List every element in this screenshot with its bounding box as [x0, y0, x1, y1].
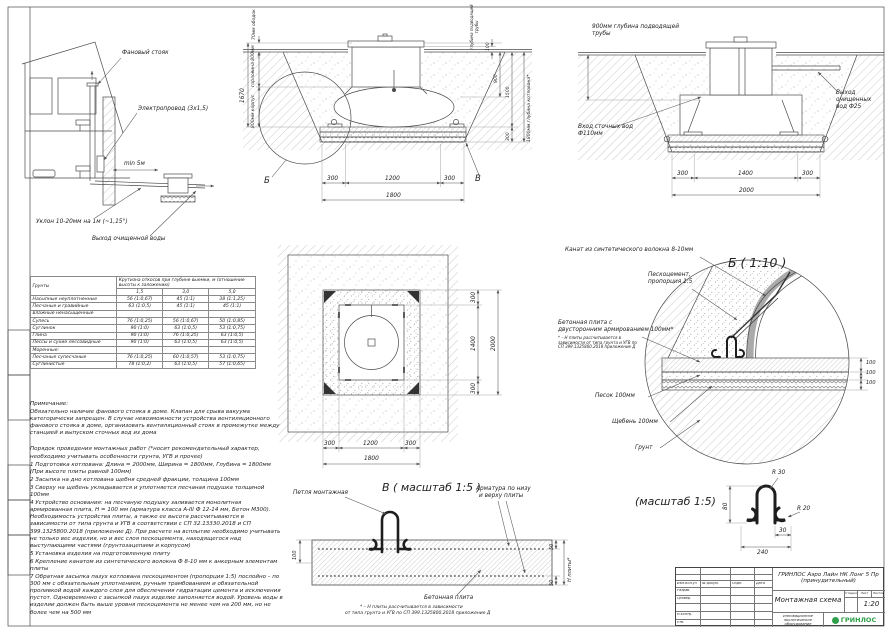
dim-body-800: 800мм корпус — [251, 95, 256, 128]
tb-col-doc: № докум. — [702, 582, 730, 586]
label-sand-100: Песок 100мм — [595, 393, 635, 400]
tb-company-tagline: Инновационное экологическое оборудование — [773, 615, 823, 627]
dim-plan-total-h: 2000 — [491, 336, 498, 351]
label-concrete-slab-v: Бетонная плита — [424, 595, 473, 602]
tb-col-sign: Подп. — [732, 582, 754, 586]
dim-s2-w3: 300 — [802, 171, 813, 178]
detail-mark-b: Б — [264, 176, 270, 186]
detail-b-view — [642, 257, 868, 470]
label-inlet-110: Вход сточных вод Ф110мм — [578, 124, 634, 138]
dim-plan-h1: 300 — [471, 292, 478, 303]
dim-plan-h3: 300 — [471, 383, 478, 394]
label-inlet-pipe-depth: глубина подводящей трубы — [470, 4, 479, 50]
label-sandcement-1: Пескоцемент, — [648, 272, 691, 279]
loop-detail-view — [726, 478, 800, 551]
dim-min-distance: min 5м — [124, 161, 145, 168]
tb-stage-header: Стадия — [845, 592, 857, 595]
label-pipe-slope: Уклон 10-20мм на 1м (~1,15°) — [36, 219, 128, 226]
label-sandcement-2: пропорция 1:5 — [648, 279, 692, 286]
notes-step: 6 Крепление канатом из синтетического во… — [30, 559, 283, 573]
tb-sheets-header: Листов — [872, 592, 885, 595]
notes-step: 5 Установка изделия на подготовленную пл… — [30, 551, 283, 558]
dim-plan-total-w: 1800 — [364, 456, 379, 463]
table-row: Песчаные супесчаные76 (1:0,25)60 (1:0,57… — [31, 354, 256, 361]
footnote-slab-height: * – Н плиты рассчитывается в зависимости… — [558, 336, 642, 350]
tb-sheet-name: Монтажная схема — [773, 597, 843, 611]
dim-300-layers: 300 — [506, 132, 511, 141]
logo-brand-text: ГРИНЛОС — [841, 617, 876, 624]
detail-v-view — [296, 497, 568, 595]
dim-layer-2: 100 — [866, 371, 876, 377]
table-col-3: 5,0 — [209, 289, 256, 296]
plan-view — [278, 245, 502, 468]
label-electrical-wire: Электропровод (3х1,5) — [138, 106, 208, 113]
dim-layer-3: 100 — [866, 381, 876, 387]
label-mounting-loop: Петля монтажная — [293, 490, 348, 497]
tb-row-developed: Разраб. — [677, 589, 700, 593]
loop-detail-title: (масштаб 1:5) — [635, 496, 716, 509]
label-clean-water-outlet: Выход очищенной воды — [92, 236, 165, 243]
label-soil: Грунт — [635, 445, 653, 452]
dim-plan-w3: 300 — [405, 441, 416, 448]
soil-slope-table: Грунты Крутизна откосов при глубине выем… — [30, 276, 256, 369]
label-rebar-2: и верху плиты — [479, 493, 523, 500]
notes-step: 4 Устройство основания: на песчаную поду… — [30, 500, 283, 550]
tb-row-approved: Утв. — [677, 621, 700, 625]
label-pit-depth-1800: 1800мм глубина котлована* — [527, 75, 532, 143]
notes-step: 7 Обратная засыпка пазух котлована песко… — [30, 574, 283, 617]
label-fan-riser: Фановый стояк — [122, 50, 169, 57]
detail-b-title: Б ( 1:10 ) — [728, 256, 786, 271]
notes-para-2: Порядок проведения монтажных работ (*нос… — [30, 446, 283, 460]
dim-plan-h2: 1400 — [471, 336, 478, 351]
tb-col-izm: Изм.Кол.уч — [677, 582, 700, 586]
dim-v-100: 100 — [293, 550, 299, 560]
dim-v-50-bottom: 50 — [550, 580, 556, 586]
dim-1500: 1500 — [506, 87, 511, 98]
notes-title: Примечание: — [30, 401, 283, 408]
label-concrete-slab-2: двусторонним армированием 100мм* — [558, 327, 673, 334]
table-col-1: 1,5 — [117, 289, 163, 296]
table-group-header: Крутизна откосов при глубине выемки, м (… — [117, 277, 256, 289]
table-row: Песчаные и гравийные63 (1:0,5)45 (1:1)45… — [31, 303, 256, 310]
label-concrete-slab-1: Бетонная плита с — [558, 320, 612, 327]
label-gravel-100: Щебень 100мм — [612, 419, 658, 426]
company-logo: ГРИНЛОС — [824, 614, 884, 626]
label-outlet-25: Выход очищенных вод Ф25 — [836, 90, 882, 110]
dim-s1-w2: 1200 — [385, 176, 400, 183]
installation-notes: Примечание: Обязательно наличие фанового… — [30, 401, 283, 618]
detail-mark-v: В — [475, 174, 481, 184]
label-inlet-depth-900: 900мм глубина подводящей трубы — [592, 24, 684, 38]
dim-loop-30: 30 — [779, 528, 786, 535]
logo-globe-icon — [832, 617, 839, 624]
table-row: Суглинок90 (1:0)63 (1:0,5)53 (1:0,75) — [31, 325, 256, 332]
dim-s1-total-w: 1800 — [386, 193, 401, 200]
house-section-view — [22, 42, 214, 236]
label-rope: Канат из синтетического волокна 8-10мм — [565, 247, 693, 254]
dim-900: 900 — [494, 74, 499, 83]
table-corner-header: Грунты — [31, 277, 117, 296]
dim-100-inlet: 100 — [486, 42, 491, 51]
footnote-v-2: от типа грунта и УГВ по СП 399.1325800.2… — [345, 611, 490, 616]
dim-loop-80: 80 — [723, 503, 730, 510]
tb-sheet-header: Лист — [858, 592, 871, 595]
dim-s2-w1: 300 — [677, 171, 688, 178]
dim-rim-70mm: 70мм ободок — [252, 9, 257, 40]
table-row: Суглинистые78 (1:0,2)63 (1:0,5)57 (1:0,6… — [31, 361, 256, 368]
dim-total-1670: 1670 — [240, 88, 247, 103]
excavation-section-2000-view — [578, 37, 884, 198]
tb-row-checked: Провер. — [677, 597, 700, 601]
tb-row-ncontrol: Н.контр. — [677, 613, 700, 617]
tb-document-title: ГРИНЛОС Аэро Лайн НК Лонг 5 Пр (принудит… — [773, 572, 884, 590]
dim-v-50-top: 50 — [550, 544, 556, 550]
table-row: Моренные: — [31, 347, 256, 354]
footnote-v-1: * – Н плиты рассчитывается в зависимости — [360, 605, 463, 610]
notes-step: 1 Подготовка котлована: Длина = 2000мм, … — [30, 462, 283, 476]
tb-col-date: Дата — [756, 582, 772, 586]
dim-s1-w3: 300 — [444, 176, 455, 183]
dim-s1-w1: 300 — [327, 176, 338, 183]
dim-s2-w2: 1400 — [738, 171, 753, 178]
dim-plan-w2: 1200 — [363, 441, 378, 448]
notes-para-1: Обязательно наличие фанового стояка в до… — [30, 409, 283, 437]
table-col-2: 3,0 — [163, 289, 209, 296]
notes-step: 3 Сверху на щебень укладывается и уплотн… — [30, 485, 283, 499]
notes-step: 2 Засыпка на дно котлована щебня средней… — [30, 477, 283, 484]
dim-layer-1: 100 — [866, 361, 876, 367]
dim-plan-w1: 300 — [324, 441, 335, 448]
dim-loop-240: 240 — [757, 550, 768, 557]
tb-scale: 1:20 — [858, 601, 885, 612]
table-row: Супесь76 (1:0,25)56 (1:0,67)50 (1:0,85) — [31, 318, 256, 325]
table-row: Глина90 (1:0)76 (1:0,25)63 (1:0,5) — [31, 332, 256, 339]
table-row: Насыпные неуплотненные56 (1:0,67)45 (1:1… — [31, 296, 256, 303]
label-rebar-1: Арматура по низу — [476, 486, 531, 493]
dim-r30: R 30 — [772, 470, 785, 477]
drawing-sheet: Фановый стояк Электропровод (3х1,5) min … — [0, 0, 891, 632]
table-row: Лессы и сухие лессовидные90 (1:0)63 (1:0… — [31, 339, 256, 346]
dim-neck-800: горловина 800мм — [251, 45, 256, 87]
dim-s2-total-w: 2000 — [739, 188, 754, 195]
table-row: влажные ненасыщенные — [31, 310, 256, 317]
title-block: Изм.Кол.уч № докум. Подп. Дата Разраб. П… — [675, 567, 884, 626]
detail-v-title: В ( масштаб 1:5 ) — [382, 482, 481, 495]
dim-v-h-plate: Н плиты* — [568, 558, 574, 582]
dim-r20: R 20 — [797, 506, 810, 513]
